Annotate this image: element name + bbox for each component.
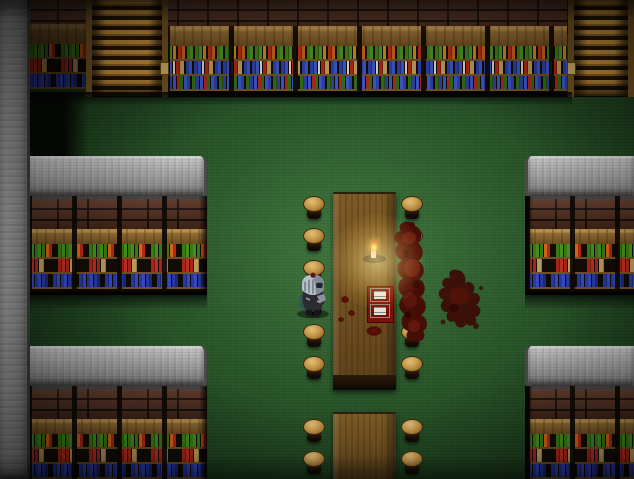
stool (303, 228, 325, 253)
staircase-top-right[interactable] (568, 0, 634, 97)
block-side-shadow (525, 196, 533, 292)
wall-floor-shadow (27, 92, 572, 106)
stool (303, 419, 325, 444)
stone-wall-column-left (0, 0, 30, 479)
long-table-bottom (333, 412, 396, 479)
stool (401, 356, 423, 381)
shelf-posts (165, 26, 567, 96)
bookshelf-block-bottom-right (525, 346, 634, 479)
shelf-posts (27, 196, 207, 292)
top-bookshelves (165, 26, 567, 96)
stool (401, 451, 423, 476)
stone-ledge (27, 346, 207, 389)
stool (401, 196, 423, 221)
stone-ledge (27, 156, 207, 199)
table-front-panel (333, 375, 396, 390)
block-side-shadow (199, 196, 207, 292)
bookshelf-block-right-mid (525, 156, 634, 292)
stone-ledge (525, 346, 634, 389)
stool (303, 196, 325, 221)
knight-graphic (293, 272, 333, 318)
stone-ledge (525, 156, 634, 199)
stool (401, 419, 423, 444)
knight-sprite[interactable] (293, 272, 333, 318)
shelf-posts (525, 196, 634, 292)
blood-splatter (429, 266, 489, 340)
stool (303, 451, 325, 476)
block-side-shadow (199, 386, 207, 479)
blood-splatter-graphic (429, 266, 489, 340)
shadow-overlay (30, 24, 86, 92)
candle-glow (330, 214, 425, 309)
shelf-posts (27, 386, 207, 479)
shelf-posts (525, 386, 634, 479)
bookshelf-block-bottom-left (27, 346, 207, 479)
game-screen: Top-down RPG interior: dark tavern libra… (0, 0, 634, 479)
small-shelf-top-left (30, 24, 86, 92)
bookshelf-block-left-mid (27, 156, 207, 292)
block-side-shadow (525, 386, 533, 479)
staircase-top-left[interactable] (86, 0, 168, 97)
stool (303, 324, 325, 349)
dark-corner-left (27, 92, 89, 158)
stool (303, 356, 325, 381)
